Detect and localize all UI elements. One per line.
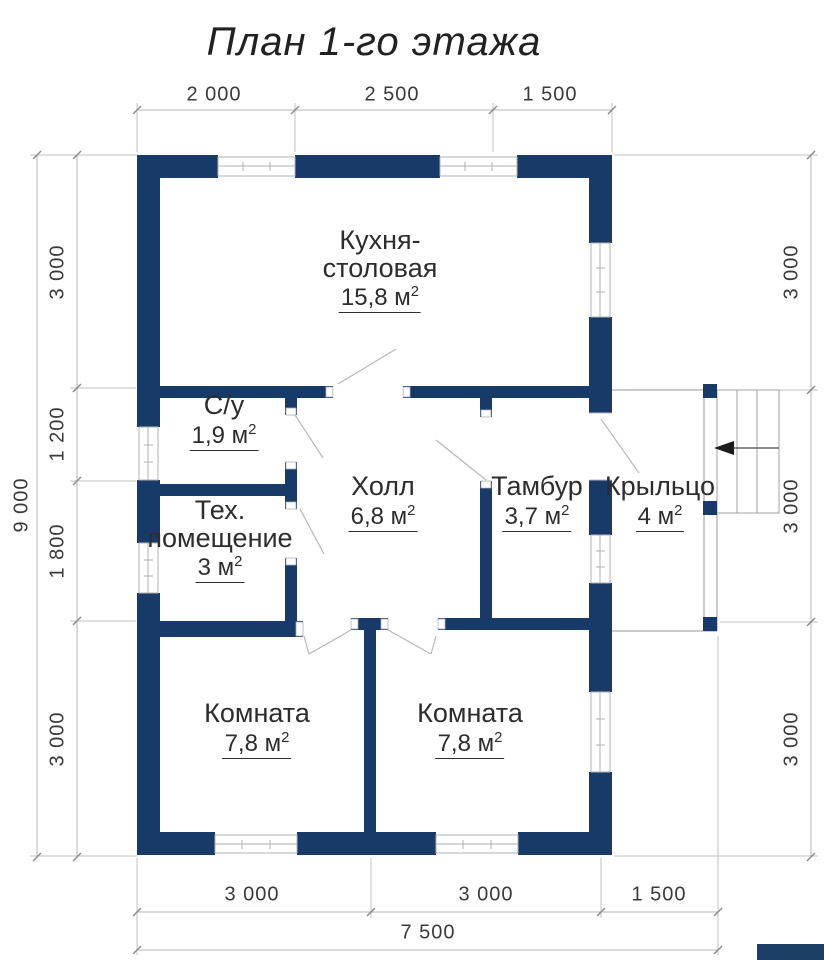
room-name-line: Комната [417, 698, 523, 728]
room-label-porch: Крыльцо 4 м2 [605, 473, 715, 529]
room-name-line: Тех. [195, 495, 245, 525]
room-label-hall: Холл 6,8 м2 [349, 473, 418, 529]
window-right-kitchen [591, 243, 610, 317]
room-label-tech: Тех. помещение 3 м2 [147, 497, 292, 581]
watermark-bar [757, 944, 824, 960]
dim-top-3: 1 500 [522, 84, 577, 107]
room-area: 3,7 м2 [503, 504, 572, 529]
door-swing-entrance [601, 419, 639, 473]
room-name-line: помещение [147, 523, 292, 553]
dim-top-1: 2 000 [186, 84, 241, 107]
plan-title: План 1-го этажа [207, 20, 542, 65]
room-label-vestibule: Тамбур 3,7 м2 [491, 473, 583, 529]
door-swing-room1 [309, 630, 351, 654]
room-label-room2: Комната 7,8 м2 [417, 700, 523, 756]
door-swing-kitchen [338, 349, 396, 384]
window-right-vestibule [591, 535, 610, 583]
window-top-1 [218, 157, 295, 176]
room-name-line: Комната [204, 698, 310, 728]
room-name-line: Холл [351, 471, 415, 501]
door-swing-room2 [388, 630, 431, 654]
dim-right-2: 3 000 [781, 478, 804, 533]
dim-left-4: 3 000 [47, 711, 70, 766]
room-name-line: Крыльцо [605, 471, 715, 501]
dim-bottom-1: 3 000 [224, 884, 279, 907]
dim-left-1: 3 000 [47, 244, 70, 299]
room-area: 1,9 м2 [190, 423, 259, 448]
window-right-room2 [591, 692, 610, 772]
room-area: 4 м2 [636, 504, 685, 529]
room-label-bathroom: С/у 1,9 м2 [190, 392, 259, 448]
floor-plan-canvas: План 1-го этажа Кухня- столовая 15,8 м2 … [0, 0, 824, 960]
entrance-door-opening [589, 413, 612, 480]
window-bottom-1 [215, 835, 297, 853]
dim-right-3: 3 000 [781, 711, 804, 766]
interior-walls [160, 386, 612, 832]
room-area: 6,8 м2 [349, 504, 418, 529]
dim-left-2: 1 200 [47, 406, 70, 461]
dim-left-total: 9 000 [11, 477, 34, 532]
dim-top-2: 2 500 [364, 84, 419, 107]
dim-left-3: 1 800 [47, 523, 70, 578]
room-name-line: Тамбур [491, 471, 583, 501]
room-name-line: Кухня- [339, 225, 420, 255]
room-name-line: С/у [204, 390, 245, 420]
dim-bottom-3: 1 500 [631, 884, 686, 907]
room-area: 7,8 м2 [436, 731, 505, 756]
room-label-kitchen: Кухня- столовая 15,8 м2 [323, 227, 438, 311]
door-swing-vestibule [436, 440, 486, 480]
dim-bottom-total: 7 500 [400, 922, 455, 945]
room-area: 15,8 м2 [339, 285, 421, 310]
window-left-bathroom [139, 427, 158, 480]
door-swing-bathroom [295, 415, 323, 458]
room-name-line: столовая [323, 253, 438, 283]
window-bottom-2 [436, 835, 518, 853]
room-area: 7,8 м2 [223, 731, 292, 756]
room-label-room1: Комната 7,8 м2 [204, 700, 310, 756]
door-swing-tech [300, 509, 324, 554]
dim-right-1: 3 000 [781, 244, 804, 299]
dim-bottom-2: 3 000 [458, 884, 513, 907]
room-area: 3 м2 [196, 555, 245, 580]
window-top-2 [440, 157, 517, 176]
